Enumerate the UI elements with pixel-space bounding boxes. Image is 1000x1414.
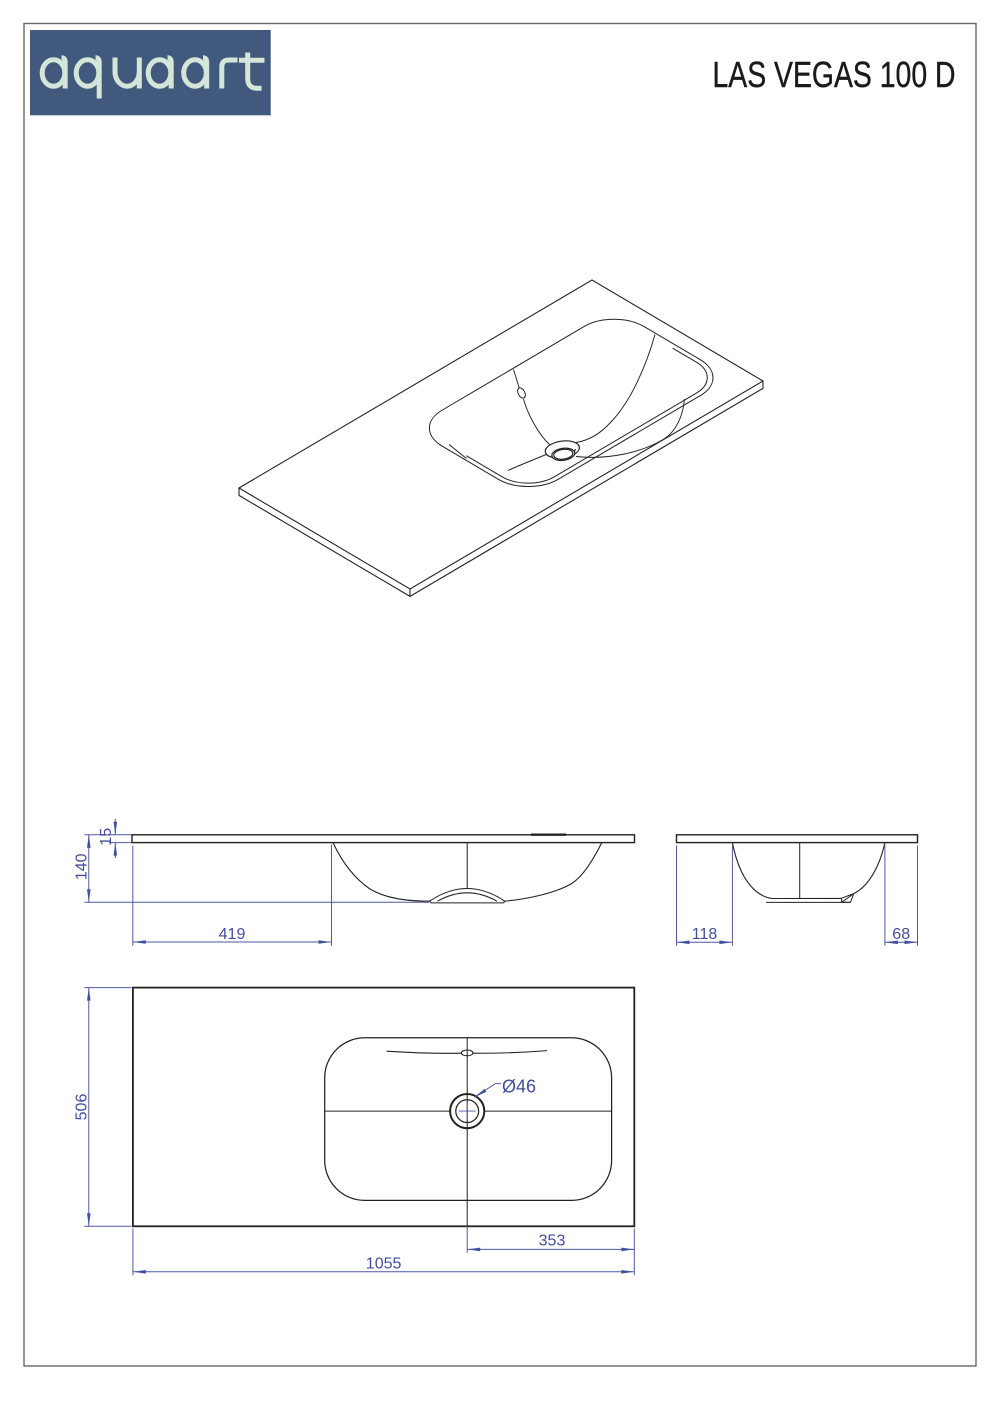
- svg-text:353: 353: [539, 1233, 566, 1250]
- svg-text:68: 68: [892, 926, 910, 943]
- svg-text:140: 140: [74, 853, 91, 880]
- svg-text:1055: 1055: [366, 1256, 402, 1273]
- svg-text:118: 118: [692, 926, 718, 943]
- svg-text:Ø46: Ø46: [502, 1076, 536, 1096]
- svg-text:506: 506: [74, 1094, 91, 1121]
- svg-text:419: 419: [219, 926, 246, 943]
- svg-text:LAS VEGAS 100 D: LAS VEGAS 100 D: [713, 54, 956, 95]
- svg-text:15: 15: [98, 828, 115, 846]
